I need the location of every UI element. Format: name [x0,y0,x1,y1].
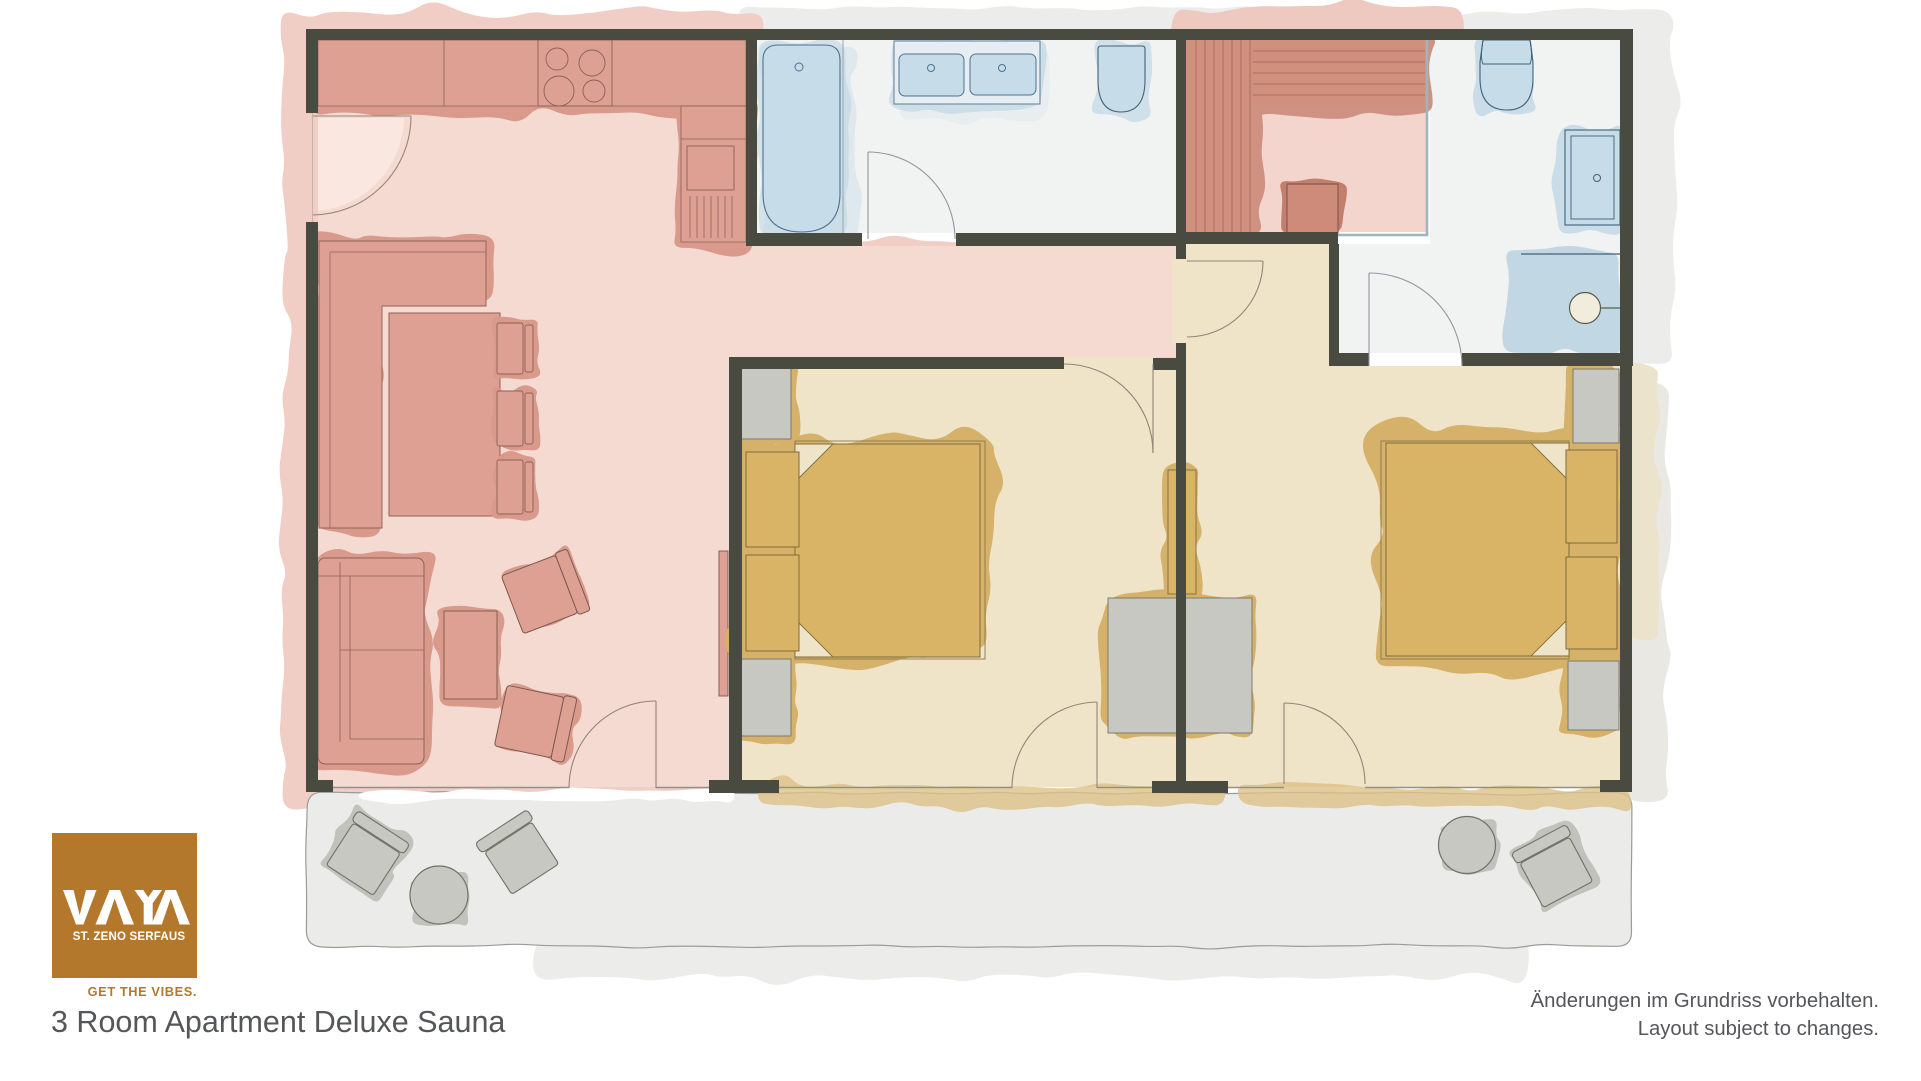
svg-text:3 Room Apartment Deluxe Sauna: 3 Room Apartment Deluxe Sauna [51,1005,505,1039]
svg-text:GET THE VIBES.: GET THE VIBES. [88,984,197,999]
svg-text:ST. ZENO SERFAUS: ST. ZENO SERFAUS [73,931,186,943]
svg-text:Layout subject to changes.: Layout subject to changes. [1638,1018,1879,1040]
svg-text:Änderungen im Grundriss vorbeh: Änderungen im Grundriss vorbehalten. [1531,990,1879,1012]
